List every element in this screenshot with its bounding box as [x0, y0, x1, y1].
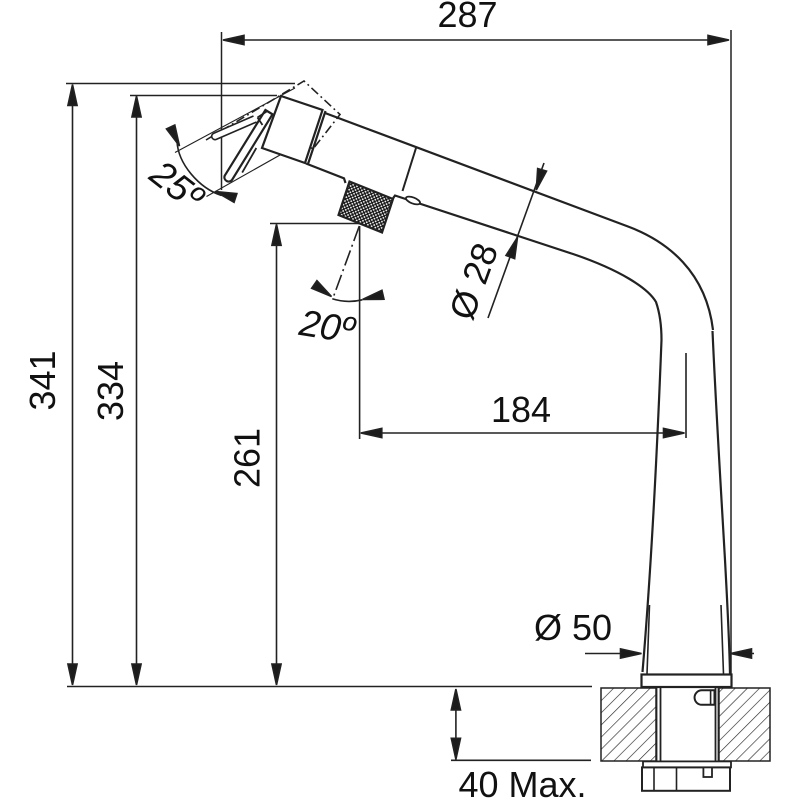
- svg-text:341: 341: [22, 350, 63, 410]
- svg-text:20º: 20º: [296, 302, 359, 351]
- svg-text:184: 184: [491, 389, 551, 430]
- svg-text:Ø 50: Ø 50: [534, 607, 612, 648]
- svg-text:334: 334: [90, 361, 131, 421]
- svg-text:25º: 25º: [142, 152, 212, 219]
- svg-text:261: 261: [227, 428, 268, 488]
- svg-text:40 Max.: 40 Max.: [458, 764, 586, 800]
- svg-text:Ø 28: Ø 28: [441, 237, 506, 324]
- svg-text:287: 287: [437, 0, 497, 35]
